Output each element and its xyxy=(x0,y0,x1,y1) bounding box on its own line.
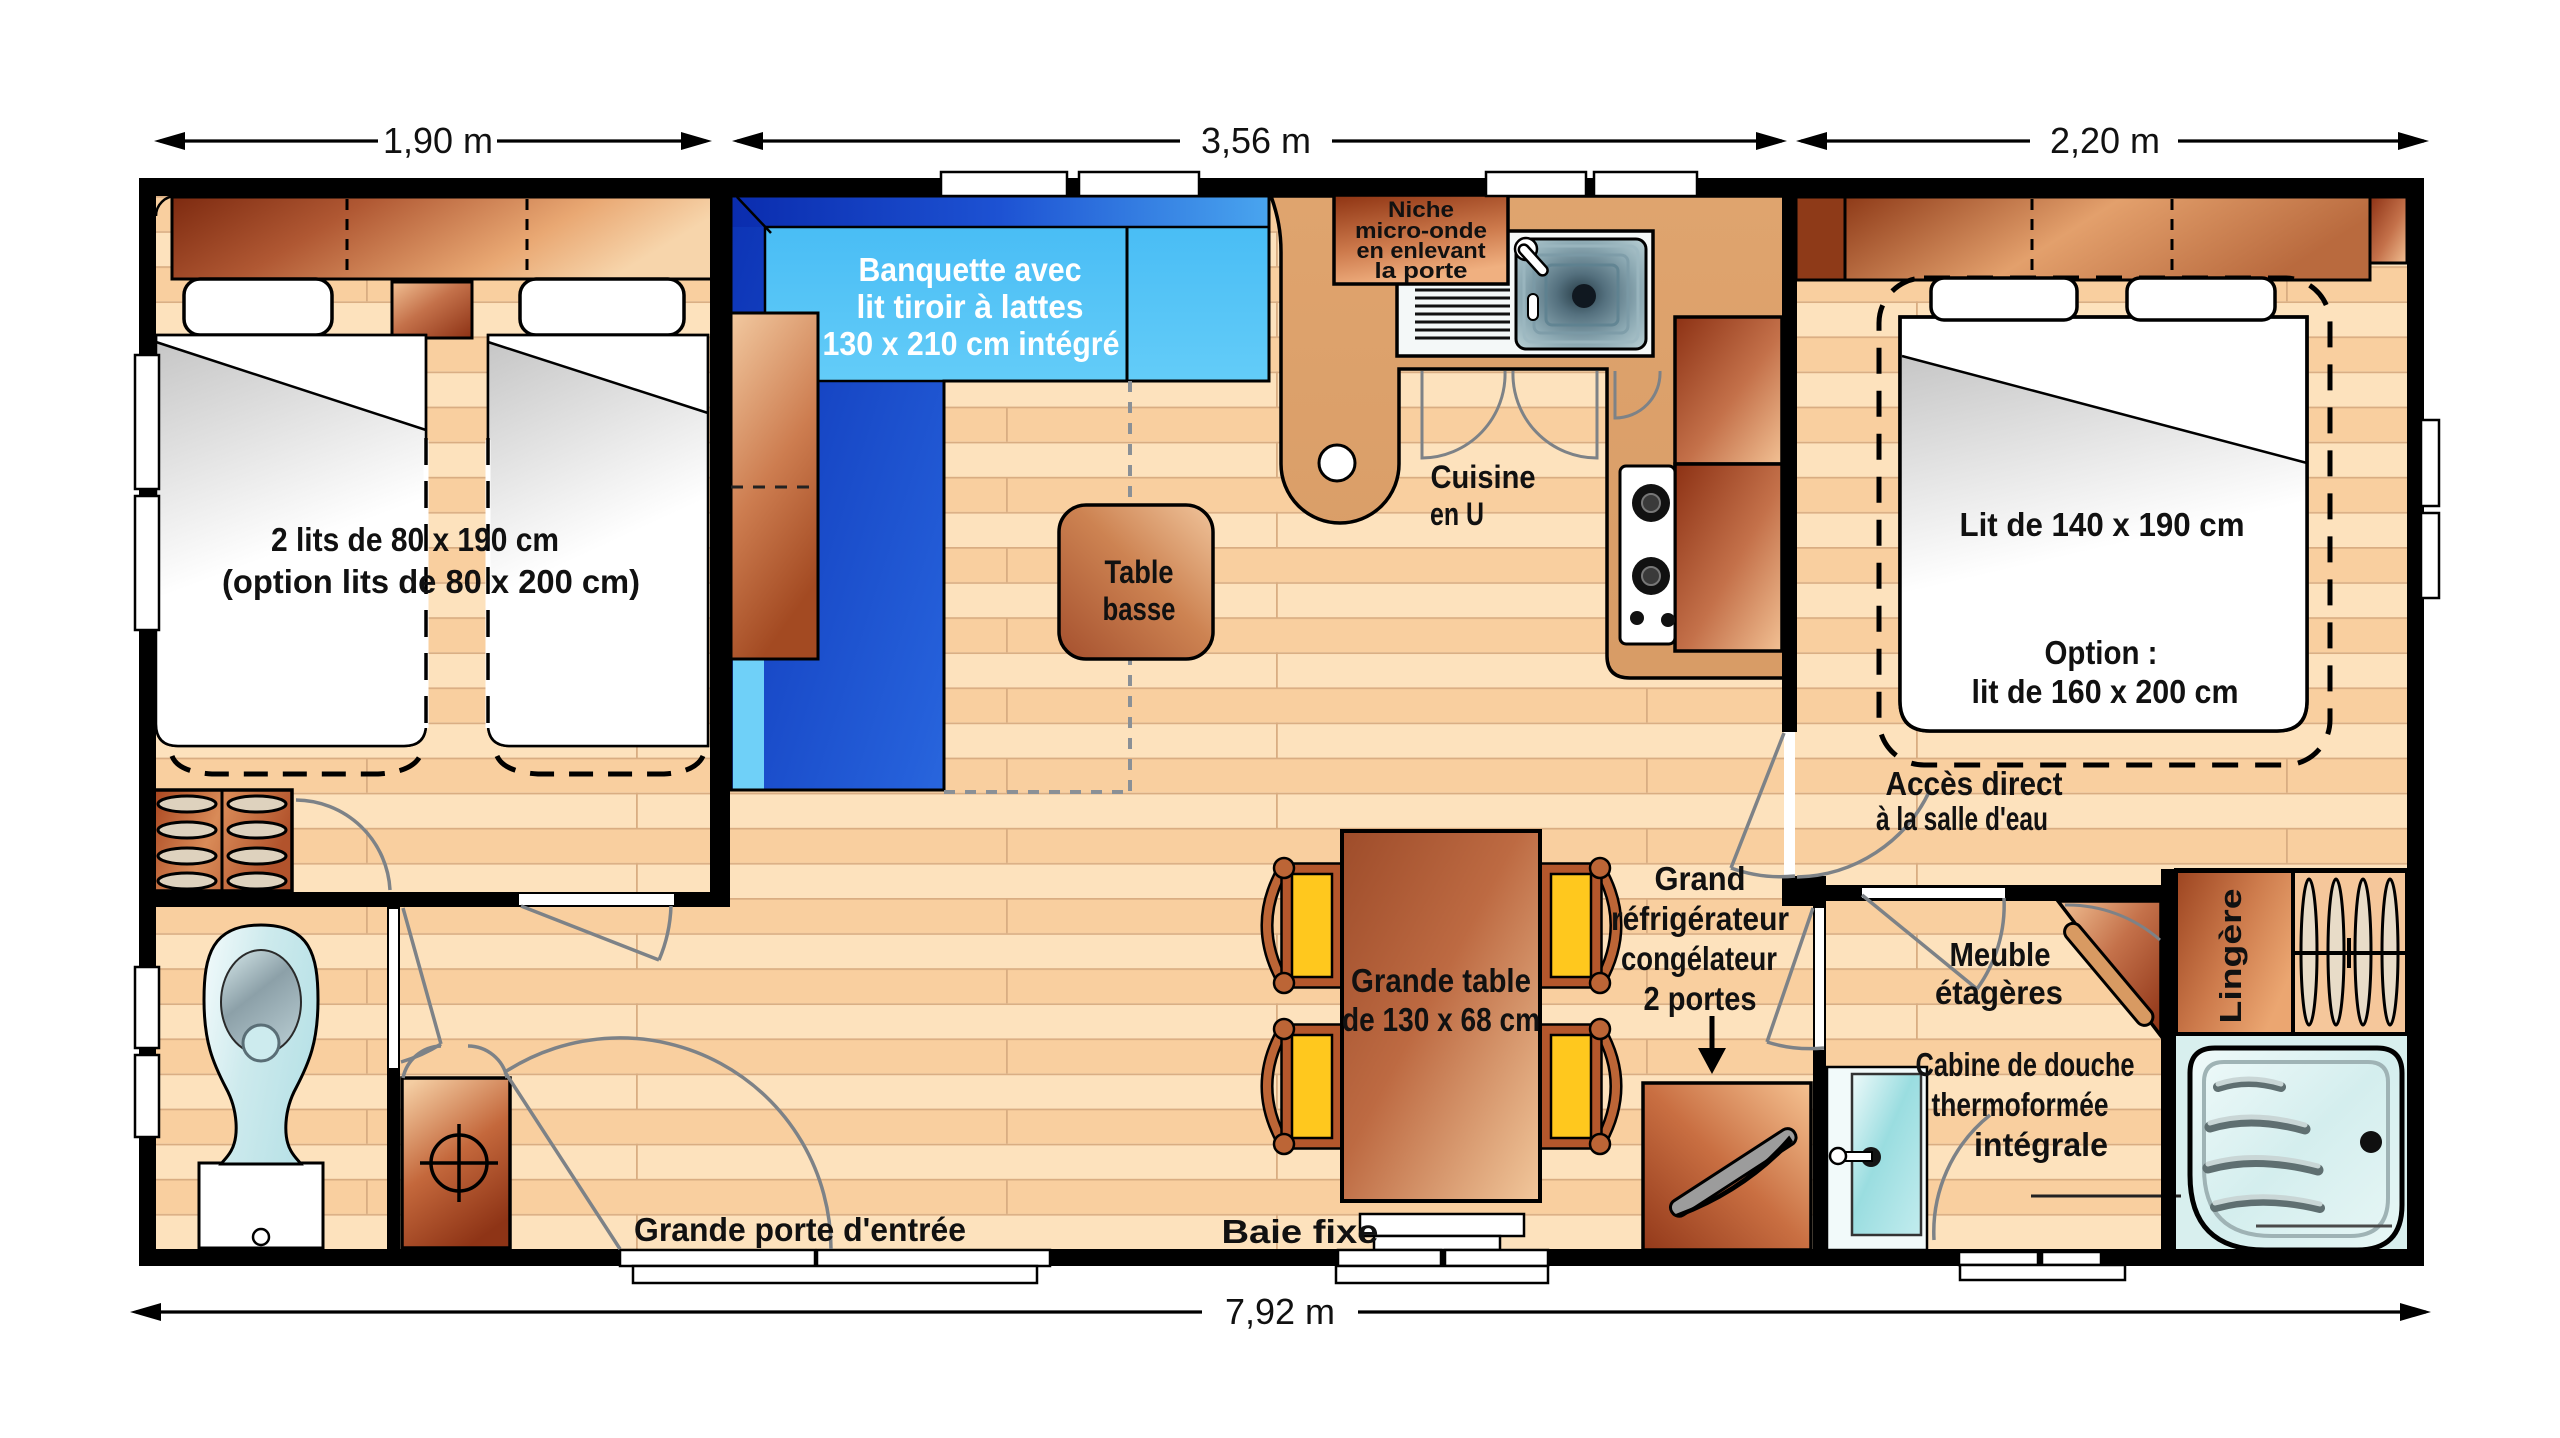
svg-text:Grand: Grand xyxy=(1655,860,1746,897)
svg-text:réfrigérateur: réfrigérateur xyxy=(1611,900,1789,937)
svg-text:en U: en U xyxy=(1430,496,1484,532)
svg-text:Meuble: Meuble xyxy=(1950,936,2051,973)
svg-text:Cuisine: Cuisine xyxy=(1431,459,1536,495)
svg-text:3,56 m: 3,56 m xyxy=(1201,120,1311,161)
svg-text:2,20 m: 2,20 m xyxy=(2050,120,2160,161)
svg-text:130 x 210 cm intégré: 130 x 210 cm intégré xyxy=(823,325,1120,362)
svg-text:lit tiroir à lattes: lit tiroir à lattes xyxy=(857,288,1084,325)
svg-text:7,92 m: 7,92 m xyxy=(1225,1291,1335,1332)
svg-text:de 130 x 68 cm: de 130 x 68 cm xyxy=(1342,1001,1540,1038)
svg-text:Lit de 140 x 190 cm: Lit de 140 x 190 cm xyxy=(1960,506,2245,543)
svg-text:lit de 160 x 200 cm: lit de 160 x 200 cm xyxy=(1972,673,2239,710)
svg-text:congélateur: congélateur xyxy=(1621,940,1777,977)
svg-text:Baie fixe: Baie fixe xyxy=(1222,1213,1379,1250)
svg-text:1,90 m: 1,90 m xyxy=(383,120,493,161)
svg-text:Option :: Option : xyxy=(2045,634,2158,671)
svg-text:Grande table: Grande table xyxy=(1351,962,1531,999)
svg-text:à la salle d'eau: à la salle d'eau xyxy=(1876,800,2048,837)
svg-text:basse: basse xyxy=(1103,591,1176,627)
svg-text:thermoformée: thermoformée xyxy=(1932,1086,2109,1123)
svg-text:Cabine de douche: Cabine de douche xyxy=(1916,1046,2135,1083)
svg-text:2 lits de 80 x 190 cm: 2 lits de 80 x 190 cm xyxy=(271,521,559,558)
svg-text:la porte: la porte xyxy=(1375,258,1468,283)
svg-text:Table: Table xyxy=(1105,554,1174,590)
svg-text:(option lits de 80 x 200 cm): (option lits de 80 x 200 cm) xyxy=(222,563,640,600)
svg-text:Banquette avec: Banquette avec xyxy=(859,251,1082,288)
svg-text:Accès direct: Accès direct xyxy=(1886,765,2063,802)
svg-text:Lingère: Lingère xyxy=(2213,889,2248,1024)
svg-text:intégrale: intégrale xyxy=(1974,1126,2108,1163)
svg-text:Grande porte d'entrée: Grande porte d'entrée xyxy=(634,1211,966,1248)
svg-text:2 portes: 2 portes xyxy=(1644,980,1757,1017)
svg-text:étagères: étagères xyxy=(1935,974,2063,1011)
